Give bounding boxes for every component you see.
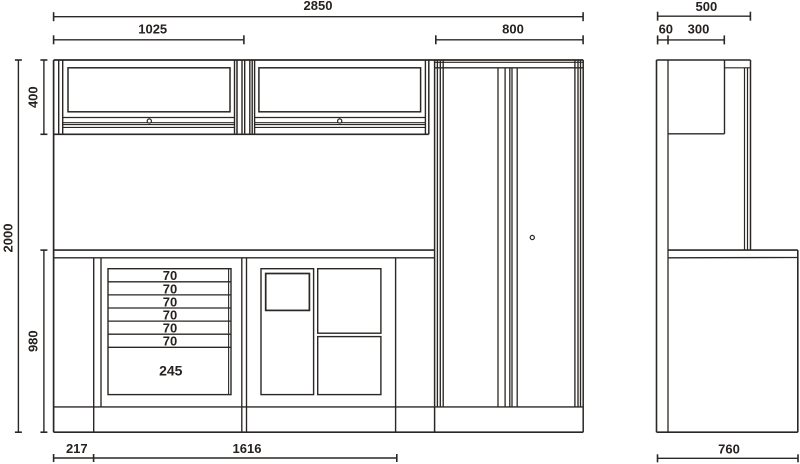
svg-text:70: 70: [163, 334, 177, 349]
svg-text:2850: 2850: [304, 0, 333, 13]
svg-text:1025: 1025: [138, 22, 167, 37]
svg-text:980: 980: [26, 330, 41, 352]
svg-text:2000: 2000: [0, 224, 15, 253]
svg-text:800: 800: [502, 22, 524, 37]
svg-text:245: 245: [159, 363, 183, 379]
svg-text:217: 217: [66, 441, 88, 456]
svg-text:760: 760: [718, 442, 740, 457]
svg-text:1616: 1616: [233, 441, 262, 456]
svg-text:400: 400: [26, 86, 41, 108]
svg-text:500: 500: [696, 0, 718, 14]
svg-text:300: 300: [688, 22, 710, 37]
svg-text:60: 60: [659, 22, 673, 37]
